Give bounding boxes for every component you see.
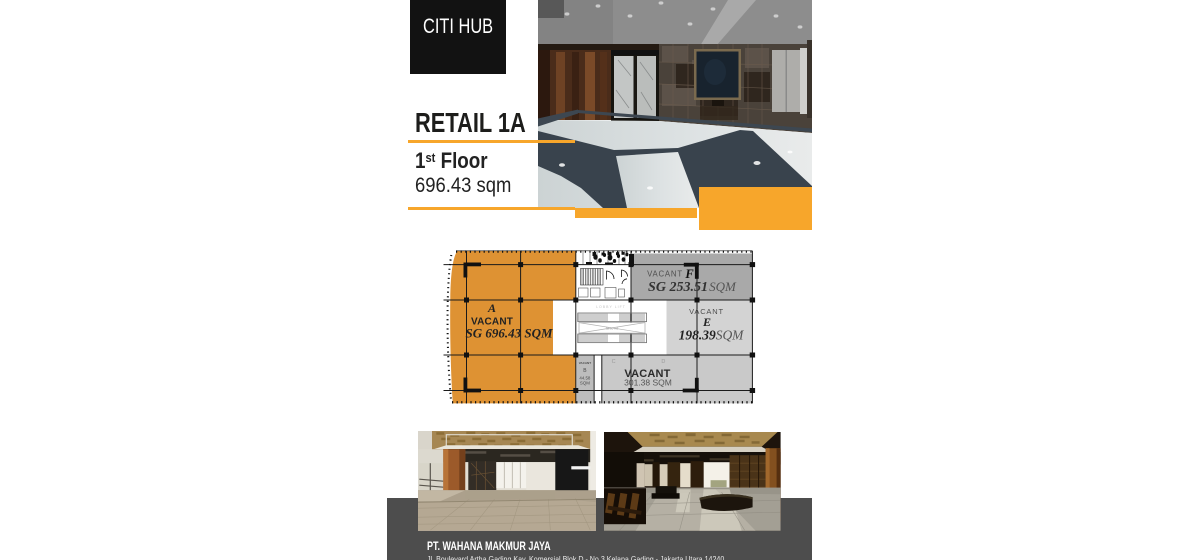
svg-text:D: D: [661, 359, 665, 365]
svg-text:32.80 m2: 32.80 m2: [606, 327, 619, 331]
svg-text:SG 253.51: SG 253.51: [648, 280, 708, 295]
svg-text:LOBBY LIFT: LOBBY LIFT: [596, 305, 626, 309]
svg-text:SQM: SQM: [709, 279, 737, 294]
svg-text:SQM: SQM: [580, 381, 590, 386]
svg-text:SG 696.43 SQM: SG 696.43 SQM: [465, 326, 552, 341]
svg-text:A: A: [487, 301, 496, 315]
svg-text:VACANT: VACANT: [647, 270, 683, 279]
svg-text:198.39SQM: 198.39SQM: [679, 328, 745, 343]
svg-text:F: F: [684, 267, 694, 281]
svg-text:301.38 SQM: 301.38 SQM: [624, 378, 672, 388]
svg-text:C: C: [612, 359, 616, 365]
svg-text:VACANT: VACANT: [579, 361, 591, 365]
